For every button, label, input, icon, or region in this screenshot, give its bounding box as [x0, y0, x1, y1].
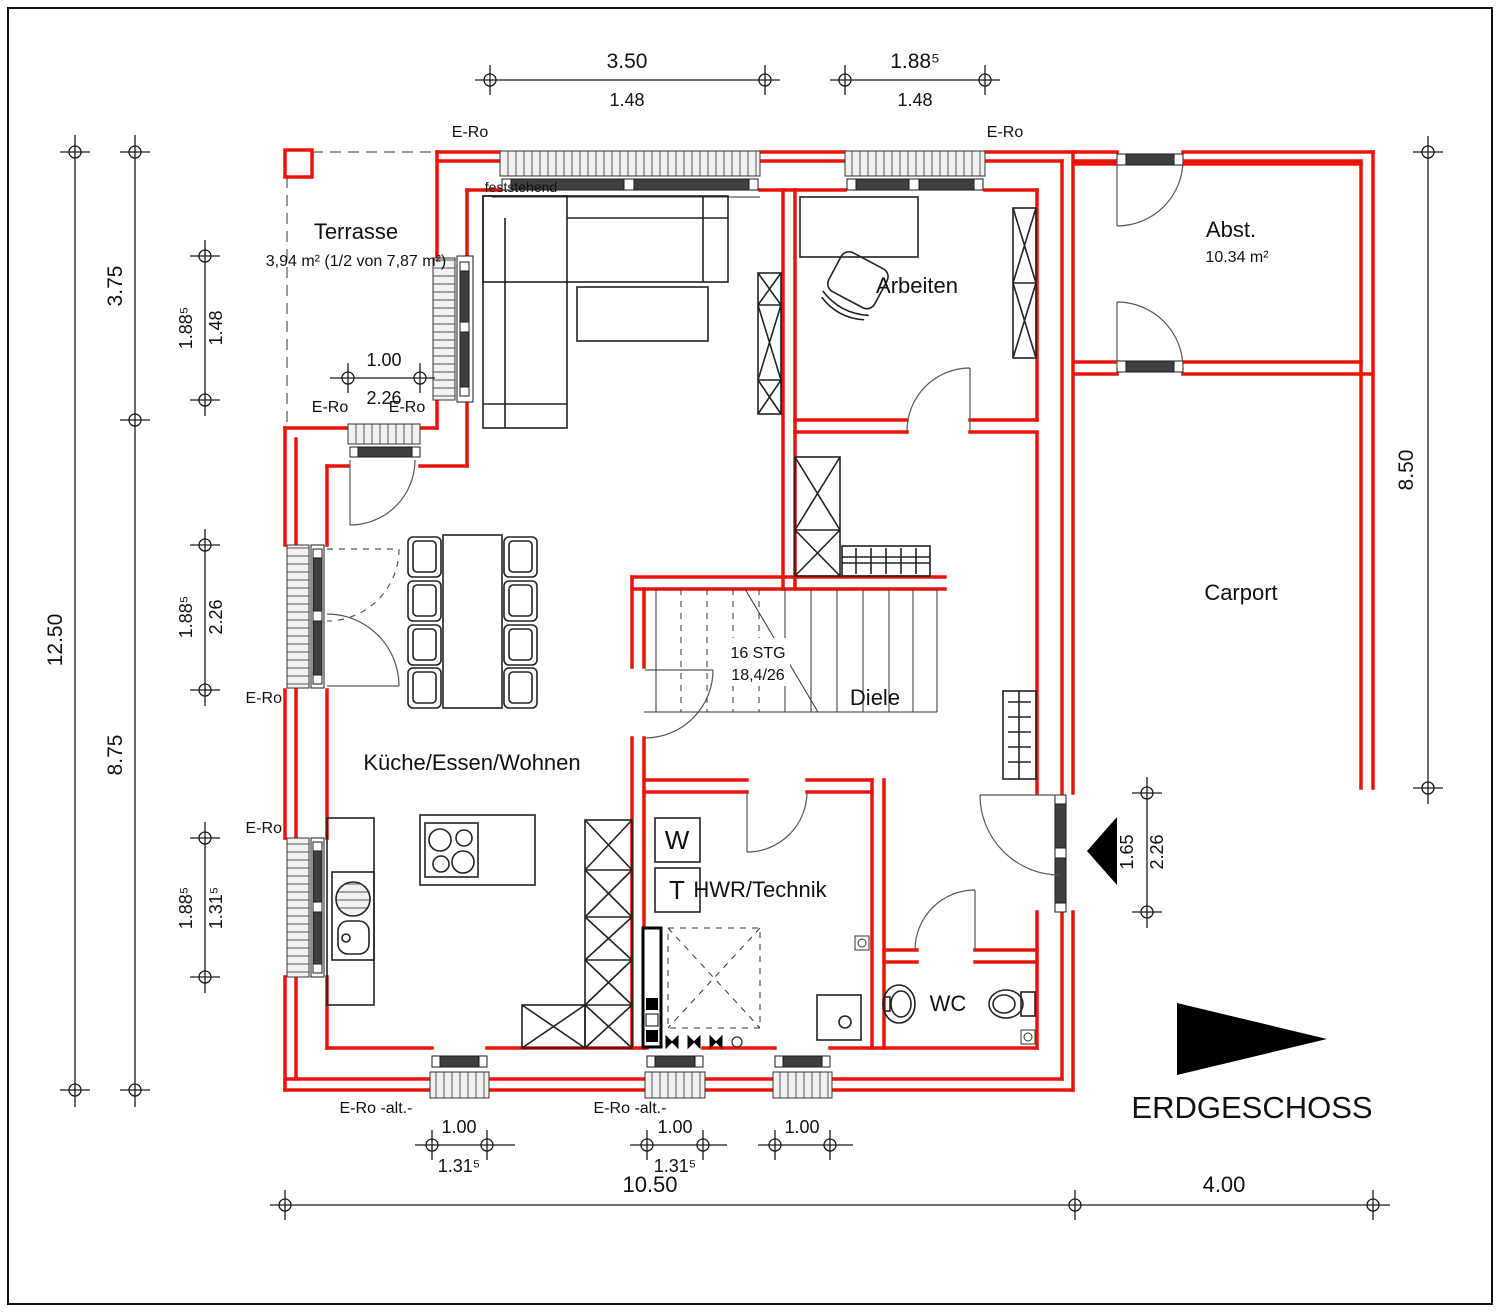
boiler — [817, 995, 861, 1040]
interior-walls — [632, 190, 1037, 1048]
cabinet-diele — [795, 457, 840, 576]
window-arbeiten-top — [845, 151, 985, 190]
room-label-kueche: Küche/Essen/Wohnen — [363, 750, 580, 775]
note-e-ro-4: E-Ro — [389, 399, 426, 416]
dim-bw3-a: 1.00 — [784, 1117, 819, 1137]
window-kitchen-left — [287, 838, 324, 977]
desk — [800, 197, 918, 257]
wc-sink — [883, 985, 915, 1023]
wc-toilet — [989, 990, 1035, 1018]
kitchen-sink — [332, 872, 374, 960]
floor-drain-wc — [1021, 1030, 1035, 1044]
wardrobe-arbeiten — [1013, 208, 1036, 358]
dim-left-lower: 8.75 — [104, 735, 127, 776]
dim-lw1-a: 1.88⁵ — [176, 307, 196, 350]
kitchen-corner-cabinet — [522, 1005, 585, 1048]
dim-lw2-b: 2.26 — [206, 599, 226, 634]
room-label-wc: WC — [930, 991, 967, 1016]
dim-terrace-a: 1.00 — [366, 350, 401, 370]
room-area-terrasse: 3,94 m² (1/2 von 7,87 m²) — [266, 253, 447, 270]
cabinet-living — [758, 273, 781, 414]
dining-chairs — [408, 537, 537, 708]
dim-lw3-b: 1.31⁵ — [206, 887, 226, 930]
dim-lw1-b: 1.48 — [206, 310, 226, 345]
floor-drain-hwr — [855, 936, 869, 950]
kitchen-island — [420, 815, 535, 885]
door-entrance — [980, 795, 1066, 912]
dim-ent-b: 2.26 — [1147, 834, 1167, 869]
dim-left-total: 12.50 — [44, 614, 67, 667]
coat-rack — [842, 546, 930, 576]
coffee-table — [577, 287, 708, 341]
window-bottom-1 — [430, 1056, 489, 1098]
page-title: ERDGESCHOSS — [1131, 1090, 1372, 1125]
note-e-ro-3: E-Ro — [312, 399, 349, 416]
dim-top-a: 3.50 — [607, 50, 648, 73]
french-door-left — [287, 545, 399, 688]
dim-bw2-a: 1.00 — [657, 1117, 692, 1137]
floorplan-page: 16 STG 18,4/26 — [0, 0, 1500, 1313]
door-arbeiten — [907, 368, 970, 431]
dim-bottom-carport: 4.00 — [1203, 1172, 1246, 1197]
terrace-boundary — [285, 150, 433, 428]
note-feststehend: feststehend — [485, 179, 557, 195]
note-e-ro-alt-2: E-Ro -alt.- — [594, 1100, 667, 1117]
dim-left-upper: 3.75 — [104, 266, 127, 307]
stairs-ratio: 18,4/26 — [731, 667, 784, 684]
stairs-count: 16 STG — [730, 645, 785, 662]
dim-lw3-a: 1.88⁵ — [176, 887, 196, 930]
room-label-hwr: HWR/Technik — [693, 877, 827, 902]
room-label-abst: Abst. — [1206, 217, 1256, 242]
note-e-ro-5: E-Ro — [246, 690, 283, 707]
window-terrace-side — [433, 256, 473, 402]
dryer-label: T — [669, 875, 685, 905]
sofa — [483, 196, 728, 428]
door-wc — [915, 890, 975, 950]
door-abst-top — [1117, 154, 1183, 226]
room-label-diele: Diele — [850, 685, 900, 710]
dim-bw1-b: 1.31⁵ — [438, 1156, 481, 1176]
note-e-ro-alt-1: E-Ro -alt.- — [340, 1100, 413, 1117]
dining-table — [443, 535, 502, 708]
heatpump-reserved-area — [668, 928, 760, 1028]
note-e-ro-2: E-Ro — [987, 124, 1024, 141]
door-hall — [645, 670, 713, 738]
terrace-door — [348, 424, 420, 525]
dim-top-b: 1.88⁵ — [890, 50, 940, 73]
room-label-terrasse: Terrasse — [314, 219, 398, 244]
dim-top-b-inner: 1.48 — [897, 90, 932, 110]
room-label-carport: Carport — [1204, 580, 1277, 605]
note-e-ro-6: E-Ro — [246, 820, 283, 837]
kitchen-tall-cabinets — [585, 820, 632, 1048]
dim-bottom-house: 10.50 — [622, 1172, 677, 1197]
washer-label: W — [665, 825, 690, 855]
door-abst-bottom — [1117, 302, 1183, 372]
heating-manifold — [643, 928, 742, 1048]
note-e-ro-1: E-Ro — [452, 124, 489, 141]
window-bottom-2 — [645, 1056, 705, 1098]
dim-lw2-a: 1.88⁵ — [176, 596, 196, 639]
dim-ent-a: 1.65 — [1117, 834, 1137, 869]
room-area-abst: 10.34 m² — [1205, 249, 1269, 266]
dim-right-carport: 8.50 — [1395, 450, 1418, 491]
entrance-arrow — [1087, 817, 1117, 885]
door-hwr — [747, 792, 807, 852]
orientation-arrow — [1177, 1003, 1327, 1075]
room-label-arbeiten: Arbeiten — [876, 273, 958, 298]
dim-top-a-inner: 1.48 — [609, 90, 644, 110]
radiator-diele — [1003, 691, 1036, 779]
floorplan-drawing: 16 STG 18,4/26 — [0, 0, 1500, 1313]
window-bottom-3 — [773, 1056, 832, 1098]
dim-bw1-a: 1.00 — [441, 1117, 476, 1137]
